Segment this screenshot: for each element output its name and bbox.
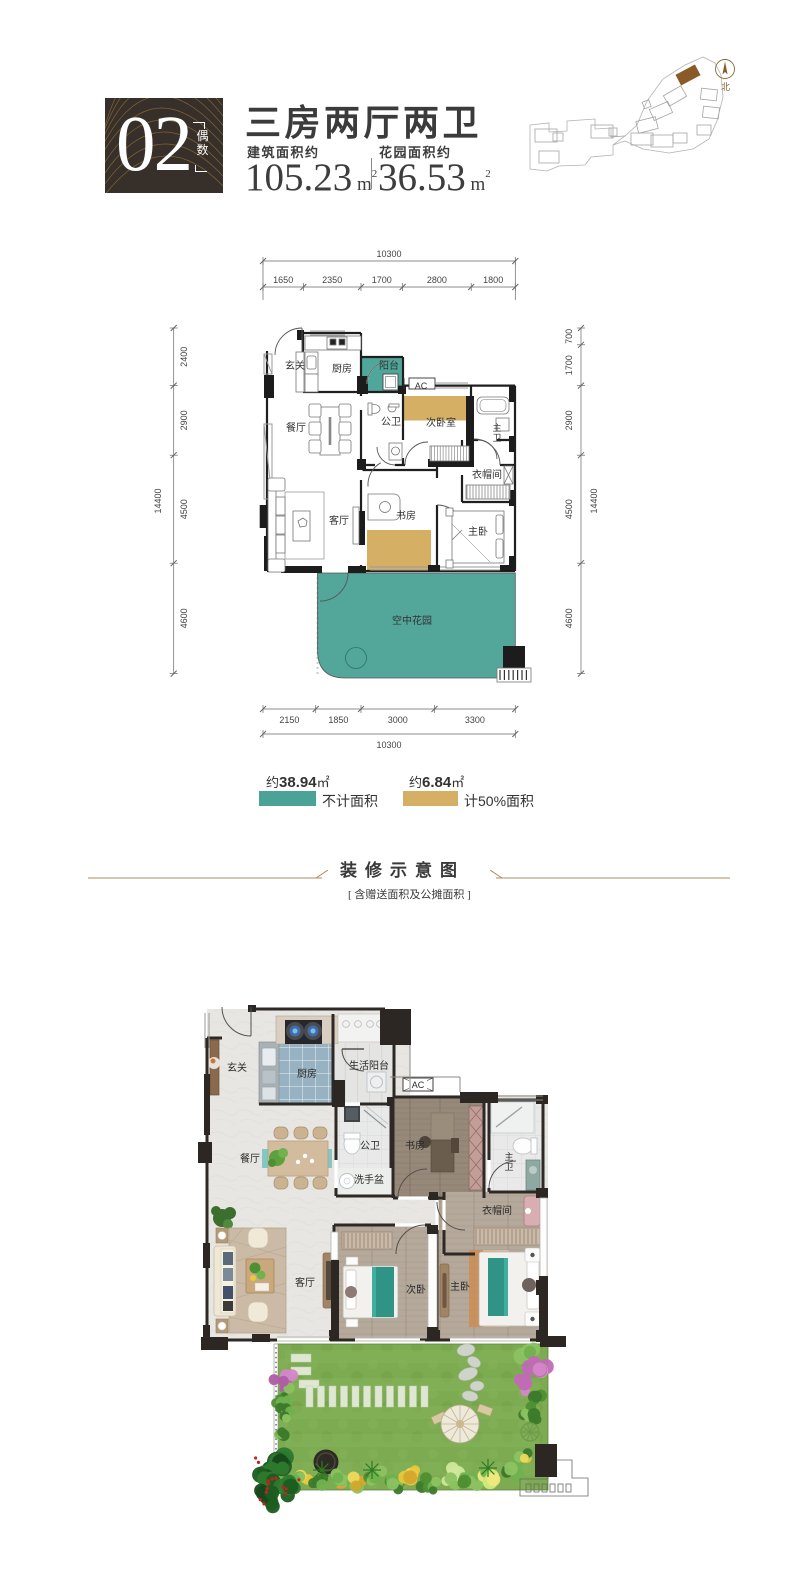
svg-text:卫: 卫 [492,433,501,443]
svg-text:2150: 2150 [279,715,299,725]
svg-text:书房: 书房 [405,1139,425,1152]
svg-text:玄关: 玄关 [227,1061,247,1074]
svg-text:1700: 1700 [564,355,574,375]
svg-text:1700: 1700 [372,275,392,285]
svg-text:14400: 14400 [589,488,599,513]
svg-text:主卧: 主卧 [450,1280,470,1293]
svg-text:北: 北 [721,82,730,92]
svg-text:2350: 2350 [322,275,342,285]
svg-text:1850: 1850 [328,715,348,725]
svg-text:10300: 10300 [376,740,401,750]
svg-text:1800: 1800 [483,275,503,285]
svg-text:厨房: 厨房 [332,362,352,375]
svg-text:书房: 书房 [396,509,416,522]
svg-text:4500: 4500 [179,499,189,519]
svg-text:主: 主 [504,1151,513,1162]
svg-text:AC: AC [415,381,428,391]
svg-text:公卫: 公卫 [360,1141,380,1152]
svg-text:客厅: 客厅 [329,514,349,527]
svg-text:空中花园: 空中花园 [392,614,432,627]
svg-text:4500: 4500 [564,499,574,519]
svg-text:主卧: 主卧 [468,525,488,538]
svg-text:卫: 卫 [504,1162,513,1172]
svg-text:700: 700 [564,329,574,344]
svg-text:衣帽间: 衣帽间 [482,1204,512,1217]
svg-text:1650: 1650 [273,275,293,285]
svg-text:厨房: 厨房 [297,1067,317,1080]
svg-text:2900: 2900 [564,410,574,430]
svg-text:4600: 4600 [564,608,574,628]
svg-text:主: 主 [492,422,501,433]
svg-text:洗手盆: 洗手盆 [354,1173,384,1186]
svg-text:2900: 2900 [179,410,189,430]
svg-text:公卫: 公卫 [381,417,401,428]
svg-text:3300: 3300 [465,715,485,725]
svg-text:玄关: 玄关 [285,359,305,372]
svg-text:次卧: 次卧 [406,1283,426,1296]
svg-text:AC: AC [412,1080,425,1090]
svg-text:次卧室: 次卧室 [426,416,456,429]
svg-text:生活阳台: 生活阳台 [349,1059,389,1072]
svg-text:客厅: 客厅 [295,1276,315,1289]
svg-text:2400: 2400 [179,347,189,367]
svg-text:餐厅: 餐厅 [240,1152,260,1165]
svg-text:2800: 2800 [427,275,447,285]
svg-text:阳台: 阳台 [379,359,399,372]
svg-text:餐厅: 餐厅 [286,421,306,434]
svg-text:衣帽间: 衣帽间 [472,468,502,481]
svg-text:14400: 14400 [153,488,163,513]
svg-text:3000: 3000 [388,715,408,725]
svg-text:10300: 10300 [376,249,401,259]
svg-text:4600: 4600 [179,608,189,628]
